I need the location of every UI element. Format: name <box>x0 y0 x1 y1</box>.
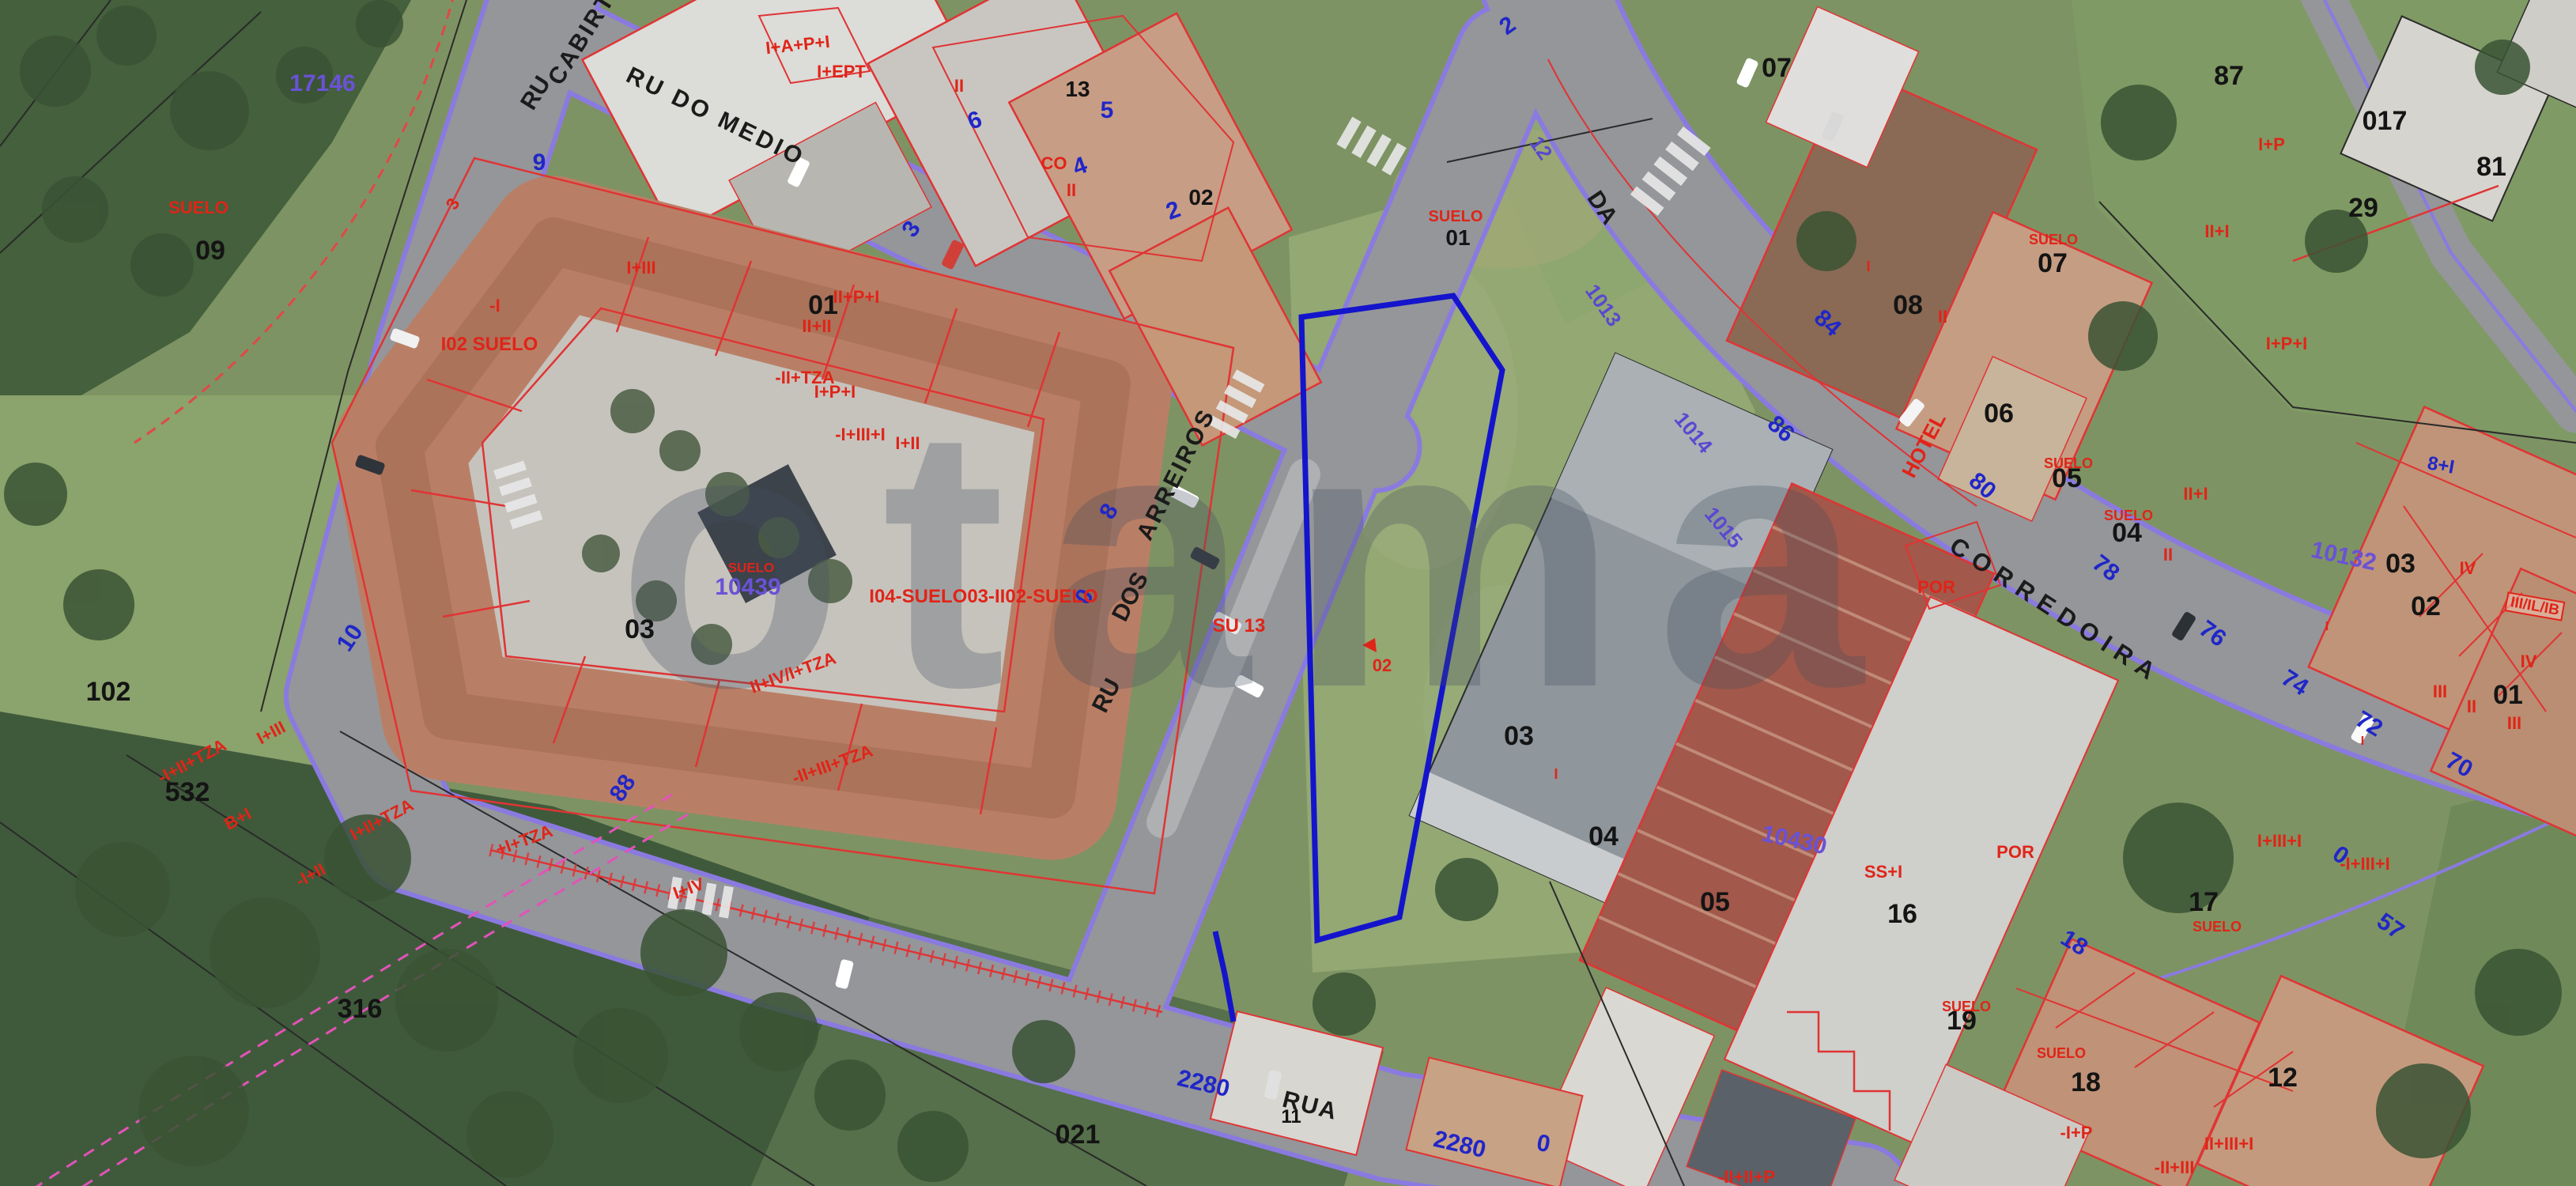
zoning-label: I+II <box>895 435 920 452</box>
zoning-label: I+II+TZA <box>348 796 417 844</box>
parcel-number-label: 81 <box>2476 153 2506 180</box>
house-number-label: 3 <box>898 217 925 242</box>
street-name-label: DOS <box>1109 568 1153 625</box>
house-number-label: 2280 <box>1175 1067 1232 1101</box>
house-number-label: 8 <box>1096 500 1123 523</box>
house-number-label: 84 <box>1810 306 1845 342</box>
house-number-label: 72 <box>2351 708 2386 742</box>
parcel-number-label: 07 <box>1762 55 1792 81</box>
zoning-label: I+P+I <box>814 383 856 401</box>
zoning-label: I+III <box>254 719 288 748</box>
zoning-label: SUELO <box>2193 920 2242 934</box>
parcel-number-label: 87 <box>2214 62 2244 89</box>
parcel-number-label: 29 <box>2348 195 2378 221</box>
house-number-label: 74 <box>2277 666 2312 700</box>
cadastral-ref-label: 10132 <box>2309 538 2378 576</box>
zoning-label: -II+III <box>2155 1159 2195 1177</box>
survey-number-label: 1015 <box>1701 503 1746 551</box>
zoning-label: III <box>2507 715 2521 732</box>
zoning-label: II <box>1067 182 1076 199</box>
zoning-label: SUELO <box>728 561 775 575</box>
zoning-label: 02 <box>1373 657 1392 674</box>
zoning-label: -I+P <box>2060 1124 2093 1142</box>
house-number-label: 57 <box>2373 909 2408 944</box>
zoning-label: II+II <box>802 318 831 335</box>
street-name-label: DA <box>1582 187 1621 229</box>
zoning-label: I <box>2325 621 2329 633</box>
parcel-number-label: 17 <box>2189 889 2219 916</box>
parcel-number-label: 13 <box>1065 78 1090 100</box>
house-number-label: 18 <box>2057 926 2091 960</box>
zoning-label: II+P+I <box>833 289 880 306</box>
house-number-label: 86 <box>1763 412 1799 448</box>
zoning-label: -I <box>489 297 500 315</box>
zoning-label: POR <box>1917 579 1955 596</box>
zoning-label: I04-SUELO03-II02-SUELO <box>869 587 1097 606</box>
parcel-number-label: 16 <box>1887 901 1917 927</box>
street-name-label: ARREIROS <box>1133 405 1220 544</box>
parcel-number-label: 01 <box>1445 227 1470 249</box>
survey-number-label: 1013 <box>1582 281 1625 330</box>
zoning-label: SS+I <box>1864 863 1902 881</box>
zoning-label: SUELO <box>2037 1046 2086 1060</box>
house-number-label: 9 <box>533 151 546 175</box>
street-name-label: CORREDOIRA <box>1946 533 2166 688</box>
house-number-label: 6 <box>965 108 985 134</box>
parcel-number-label: 18 <box>2071 1069 2101 1096</box>
zoning-label: -II+III+TZA <box>790 742 874 787</box>
house-number-label: 10 <box>333 621 368 655</box>
house-number-label: 76 <box>2195 617 2230 652</box>
zoning-label: III <box>2433 683 2447 701</box>
zoning-label: SU 13 <box>1213 617 1266 636</box>
zoning-label: II+I <box>2183 485 2208 503</box>
zoning-label: II <box>2163 546 2173 564</box>
zoning-label: I <box>2361 735 2364 748</box>
parcel-number-label: 12 <box>2268 1064 2298 1091</box>
street-name-label: CABIRTAS <box>544 0 638 89</box>
zoning-label: -II+II+P <box>1718 1169 1775 1186</box>
parcel-number-label: 03 <box>625 616 655 643</box>
parcel-number-label: 021 <box>1056 1121 1101 1148</box>
zoning-label: B+I <box>221 805 254 833</box>
zoning-label: I+III <box>626 259 655 277</box>
parcel-number-label: 03 <box>1504 723 1534 750</box>
zoning-label: I+EPT <box>817 63 866 81</box>
house-number-label: 5 <box>1101 99 1114 123</box>
parcel-number-label: 01 <box>2493 682 2523 708</box>
cadastral-ref-label: 10430 <box>1759 822 1829 859</box>
zoning-label: I+IV <box>671 875 707 902</box>
cadastral-ref-label: 17146 <box>289 72 355 96</box>
street-name-label: RU <box>1089 675 1125 716</box>
parcel-number-label: 09 <box>195 237 225 264</box>
parcel-number-label: 02 <box>2411 593 2441 620</box>
zoning-label: I+III+I <box>2257 833 2302 850</box>
zoning-label: II+I <box>2204 223 2229 240</box>
zoning-label: SUELO <box>168 199 229 217</box>
zoning-label: SUELO <box>2044 456 2093 470</box>
parcel-number-label: 102 <box>86 678 131 705</box>
parcel-number-label: 02 <box>1188 187 1213 209</box>
parcel-number-label: 316 <box>338 995 383 1022</box>
zoning-label: II <box>1938 308 1947 326</box>
map-labels-layer: CABIRTASRURU DO MEDIOARREIROSDOSRUDACORR… <box>0 0 2576 1186</box>
parcel-number-label: 06 <box>1984 400 2014 427</box>
parcel-number-label: 04 <box>2112 519 2142 546</box>
zoning-label: I02 SUELO <box>441 335 538 354</box>
zoning-label: IV <box>2521 653 2537 670</box>
zoning-label: +I+TZA <box>493 822 555 859</box>
map-canvas[interactable]: otama CABIRTASRURU DO MEDIOARREIROSDOSRU… <box>0 0 2576 1186</box>
zoning-label: CO <box>1041 155 1067 172</box>
house-number-label: 8+I <box>2426 454 2456 478</box>
zoning-label: II <box>2467 698 2476 716</box>
zoning-label: 3 <box>443 195 463 213</box>
parcel-number-label: 11 <box>1281 1108 1301 1127</box>
zoning-label: SUELO <box>2029 232 2078 247</box>
street-name-label: RU DO MEDIO <box>622 63 808 170</box>
zoning-label: II+IV/I+TZA <box>748 649 838 697</box>
zoning-label: SUELO <box>2104 508 2153 523</box>
zoning-label: POR <box>1996 844 2034 861</box>
zoning-label: SUELO <box>1942 999 1991 1014</box>
zoning-label: I+P+I <box>2266 335 2308 353</box>
house-number-label: 70 <box>2442 749 2476 782</box>
parcel-number-label: 08 <box>1893 292 1923 319</box>
zoning-label: IV <box>2460 560 2476 577</box>
house-number-label: 80 <box>1965 469 2000 504</box>
zoning-label: I <box>1554 767 1558 781</box>
house-number-label: 78 <box>2088 551 2124 586</box>
parcel-number-label: 03 <box>2385 550 2415 577</box>
parcel-number-label: 07 <box>2038 250 2068 277</box>
zoning-label: HOTEL <box>1898 410 1949 481</box>
zoning-label: I <box>1866 259 1870 274</box>
parcel-number-label: 04 <box>1588 823 1618 850</box>
zoning-label: SUELO <box>1429 209 1483 225</box>
house-number-label: 2 <box>1496 13 1520 40</box>
zoning-label: -I+II <box>293 860 328 890</box>
survey-number-label: 1014 <box>1671 408 1716 456</box>
survey-number-label: 12 <box>1526 133 1556 164</box>
house-number-label: 2280 <box>1431 1127 1488 1162</box>
zoning-label: I+A+P+I <box>765 33 830 57</box>
zoning-label: -I+III+I <box>2340 856 2390 873</box>
zoning-label: -I+III+I <box>835 426 886 444</box>
house-number-label: 88 <box>606 771 640 806</box>
zoning-label: II <box>954 77 964 95</box>
house-number-label: 4 <box>1070 153 1090 180</box>
parcel-number-label: 017 <box>2363 108 2408 134</box>
parcel-number-label: 05 <box>1700 889 1730 916</box>
zoning-label: III/IL/IB <box>2504 591 2565 621</box>
house-number-label: 0 <box>1535 1131 1552 1157</box>
house-number-label: 2 <box>1163 198 1184 225</box>
zoning-label: II+III+I <box>2204 1135 2253 1153</box>
cadastral-ref-label: 10439 <box>715 576 780 599</box>
zoning-label: I+P <box>2258 136 2285 153</box>
